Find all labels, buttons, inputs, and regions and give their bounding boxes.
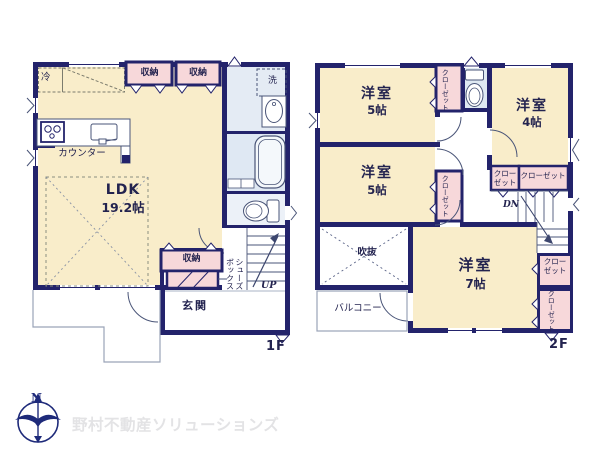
bathtub	[228, 136, 285, 188]
stairs-down-label: DN	[503, 200, 519, 211]
door-marker-toilet-2f	[464, 57, 479, 66]
bedroom3-area: 4帖	[507, 116, 557, 130]
closet-b-label: クローゼット	[441, 175, 449, 221]
stairs-up-label: UP	[261, 280, 276, 291]
storage-label-a: 収納	[127, 68, 172, 79]
floor2-label: 2F	[549, 337, 569, 352]
closet-c-label: クロー ゼット	[492, 169, 518, 188]
bedroom4-area: 7帖	[448, 277, 503, 291]
toilet-fixture-2f	[466, 70, 484, 107]
ldk-area: 19.2帖	[93, 201, 153, 216]
counter-label: カウンター	[52, 148, 112, 159]
ldk-name: LDK	[93, 182, 153, 199]
shoe-box-label: シューズ ボックス	[225, 258, 244, 310]
closet-a-label: クローゼット	[441, 69, 449, 113]
toilet-fixture-1f	[244, 200, 280, 222]
storage-label-c: 収納	[161, 254, 222, 265]
bedroom3-name: 洋室	[507, 98, 557, 115]
laundry-label: 洗	[259, 76, 286, 87]
closet-e-label: クロー ゼット	[539, 257, 571, 276]
closet-f-label: クローゼット	[547, 290, 555, 332]
door-marker-washroom	[228, 57, 241, 66]
bedroom2-name: 洋室	[352, 165, 402, 182]
bedroom2-area: 5帖	[352, 184, 402, 198]
compass-north-label: N	[31, 391, 42, 405]
closet-d-label: クローゼット	[518, 172, 568, 181]
porch-area	[33, 290, 160, 362]
floor1-label: 1F	[266, 339, 286, 354]
bedroom1-name: 洋室	[352, 86, 402, 103]
floorplan-image: 冷 収納 収納 洗 カウンター LDK 19.2帖 収納 シューズ ボックス 玄…	[0, 0, 600, 450]
shoe-box	[167, 271, 218, 288]
bird-icon	[15, 415, 61, 427]
entrance-label: 玄関	[165, 300, 225, 313]
watermark-text: 野村不動産ソリューションズ	[72, 413, 279, 435]
storage-label-b: 収納	[176, 68, 220, 79]
bedroom1-area: 5帖	[352, 104, 402, 118]
void-label: 吹抜	[347, 247, 387, 258]
bedroom4-name: 洋室	[448, 257, 503, 275]
balcony-label: バルコニー	[330, 303, 386, 314]
fridge-label: 冷	[41, 72, 51, 83]
